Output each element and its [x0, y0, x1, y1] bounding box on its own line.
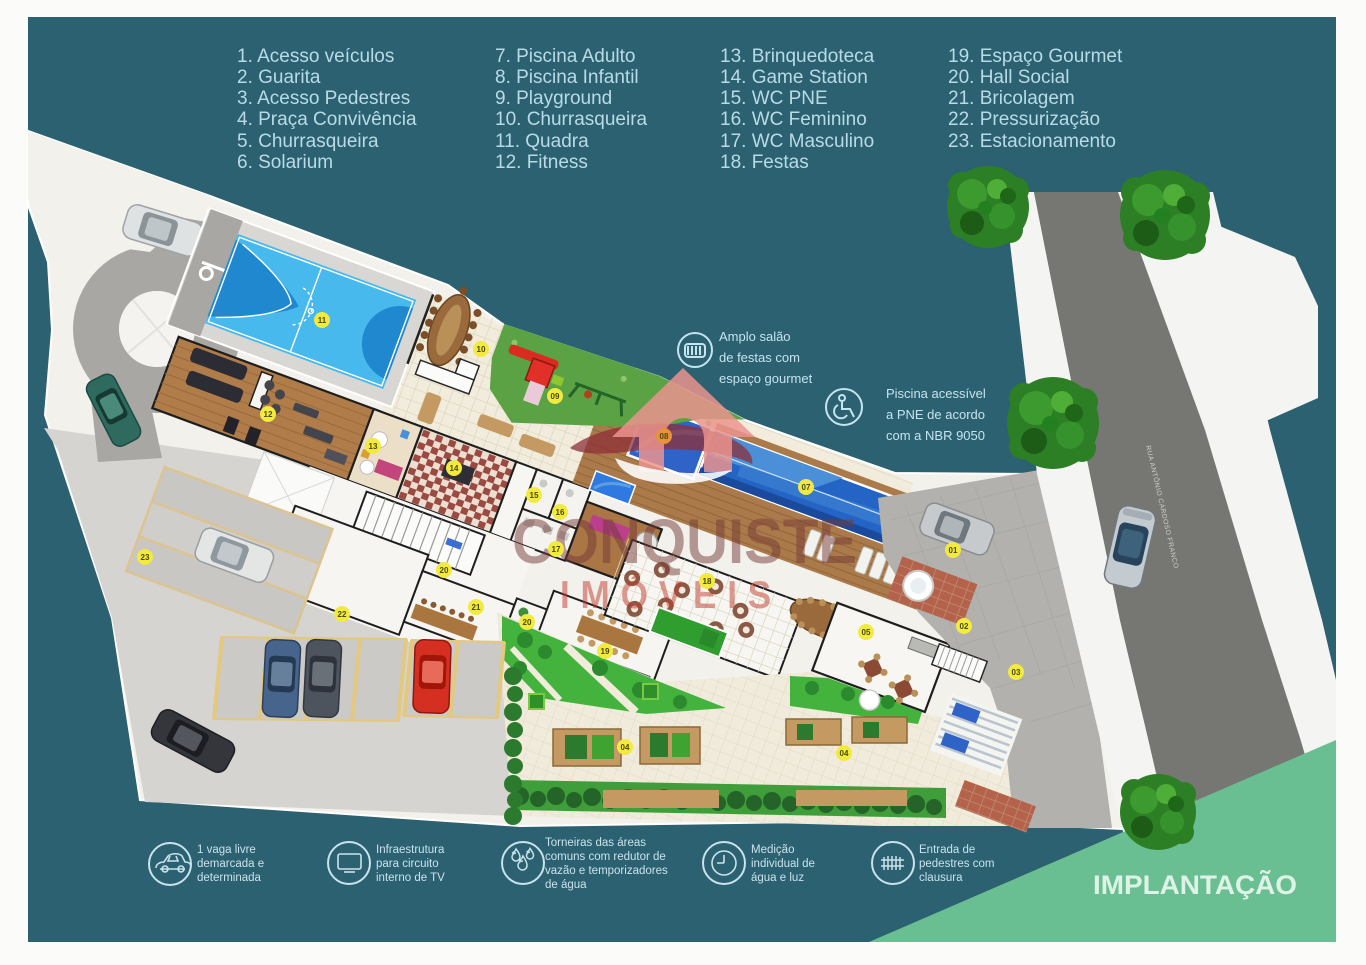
- svg-text:02: 02: [960, 622, 969, 631]
- svg-text:para circuito: para circuito: [376, 858, 439, 870]
- svg-text:19. Espaço Gourmet: 19. Espaço Gourmet: [948, 46, 1123, 67]
- svg-text:IMÓVEIS: IMÓVEIS: [560, 573, 782, 617]
- svg-text:demarcada e: demarcada e: [197, 858, 264, 870]
- svg-text:vazão e temporizadores: vazão e temporizadores: [545, 865, 668, 877]
- svg-text:6. Solarium: 6. Solarium: [237, 152, 333, 173]
- svg-text:pedestres com: pedestres com: [919, 858, 994, 870]
- svg-text:Piscina acessível: Piscina acessível: [886, 386, 986, 401]
- svg-text:10: 10: [477, 345, 486, 354]
- svg-text:4. Praça Convivência: 4. Praça Convivência: [237, 109, 417, 130]
- svg-text:determinada: determinada: [197, 872, 262, 884]
- svg-text:14: 14: [450, 464, 459, 473]
- svg-text:10. Churrasqueira: 10. Churrasqueira: [495, 109, 648, 130]
- svg-text:3. Acesso Pedestres: 3. Acesso Pedestres: [237, 88, 410, 109]
- svg-text:04: 04: [840, 749, 849, 758]
- svg-text:2. Guarita: 2. Guarita: [237, 67, 321, 88]
- svg-text:15. WC PNE: 15. WC PNE: [720, 88, 828, 109]
- svg-text:1 vaga livre: 1 vaga livre: [197, 844, 256, 856]
- svg-text:Infraestrutura: Infraestrutura: [376, 844, 445, 856]
- svg-text:21: 21: [472, 603, 481, 612]
- svg-text:12: 12: [264, 410, 273, 419]
- svg-text:comuns com redutor de: comuns com redutor de: [545, 851, 666, 863]
- svg-text:espaço gourmet: espaço gourmet: [719, 371, 813, 386]
- svg-text:07: 07: [802, 483, 811, 492]
- svg-text:16: 16: [556, 508, 565, 517]
- svg-text:18. Festas: 18. Festas: [720, 152, 809, 173]
- svg-text:20: 20: [440, 566, 449, 575]
- svg-text:23: 23: [141, 553, 150, 562]
- svg-text:13: 13: [369, 442, 378, 451]
- svg-text:21. Bricolagem: 21. Bricolagem: [948, 88, 1075, 109]
- svg-text:17: 17: [552, 545, 561, 554]
- svg-text:individual de: individual de: [751, 858, 815, 870]
- svg-text:11: 11: [318, 316, 327, 325]
- svg-text:22: 22: [338, 610, 347, 619]
- svg-text:água e luz: água e luz: [751, 872, 804, 884]
- svg-text:7. Piscina Adulto: 7. Piscina Adulto: [495, 46, 635, 67]
- svg-text:Entrada de: Entrada de: [919, 844, 975, 856]
- svg-text:8. Piscina Infantil: 8. Piscina Infantil: [495, 67, 639, 88]
- svg-text:09: 09: [551, 392, 560, 401]
- svg-text:17. WC Masculino: 17. WC Masculino: [720, 131, 874, 152]
- svg-text:03: 03: [1012, 668, 1021, 677]
- svg-text:IMPLANTAÇÃO: IMPLANTAÇÃO: [1093, 869, 1297, 900]
- svg-text:15: 15: [530, 491, 539, 500]
- svg-text:Torneiras das áreas: Torneiras das áreas: [545, 837, 646, 849]
- svg-text:20: 20: [523, 618, 532, 627]
- svg-text:5. Churrasqueira: 5. Churrasqueira: [237, 131, 379, 152]
- svg-text:Amplo salão: Amplo salão: [719, 329, 791, 344]
- svg-text:22. Pressurização: 22. Pressurização: [948, 109, 1100, 130]
- svg-text:18: 18: [703, 577, 712, 586]
- svg-text:interno de TV: interno de TV: [376, 872, 445, 884]
- svg-text:1. Acesso veículos: 1. Acesso veículos: [237, 46, 394, 67]
- svg-text:12. Fitness: 12. Fitness: [495, 152, 588, 173]
- svg-text:23. Estacionamento: 23. Estacionamento: [948, 131, 1116, 152]
- svg-text:de festas com: de festas com: [719, 350, 800, 365]
- svg-text:Medição: Medição: [751, 844, 794, 856]
- svg-text:13. Brinquedoteca: 13. Brinquedoteca: [720, 46, 875, 67]
- svg-text:14. Game Station: 14. Game Station: [720, 67, 868, 88]
- svg-text:05: 05: [862, 628, 871, 637]
- svg-text:com a NBR 9050: com a NBR 9050: [886, 428, 985, 443]
- svg-text:04: 04: [621, 743, 630, 752]
- svg-text:a PNE de acordo: a PNE de acordo: [886, 407, 985, 422]
- svg-text:20. Hall Social: 20. Hall Social: [948, 67, 1069, 88]
- svg-text:clausura: clausura: [919, 872, 963, 884]
- svg-text:9. Playground: 9. Playground: [495, 88, 612, 109]
- svg-text:01: 01: [949, 546, 958, 555]
- svg-text:19: 19: [601, 647, 610, 656]
- svg-text:16. WC Feminino: 16. WC Feminino: [720, 109, 867, 130]
- svg-text:11. Quadra: 11. Quadra: [495, 131, 589, 152]
- svg-text:08: 08: [660, 432, 669, 441]
- svg-text:de água: de água: [545, 879, 587, 891]
